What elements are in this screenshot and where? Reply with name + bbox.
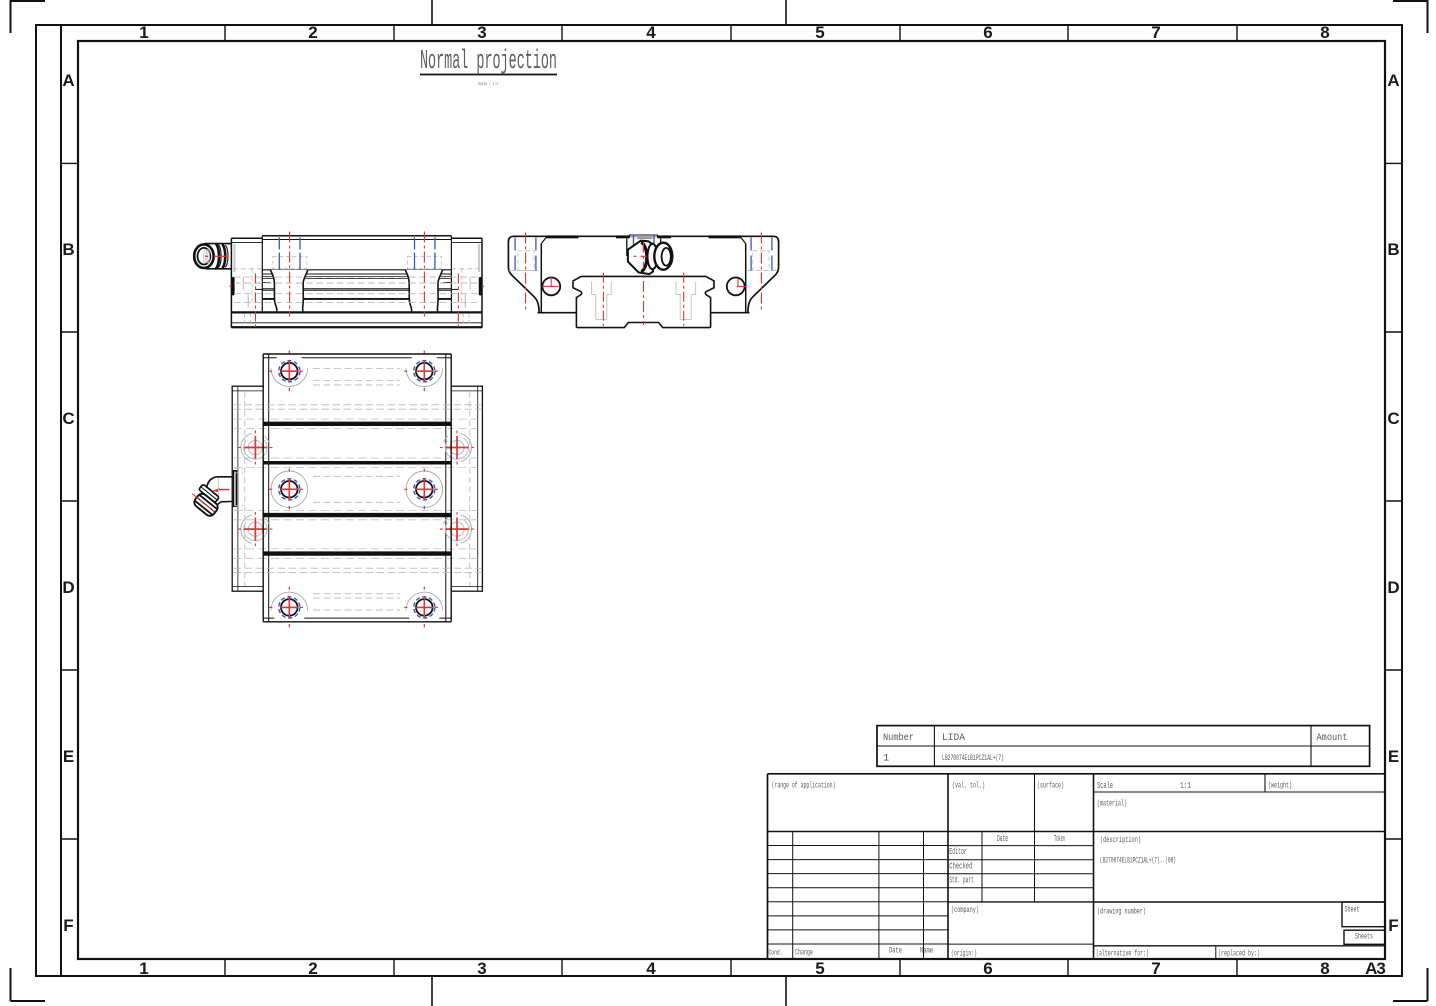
- svg-text:1: 1: [139, 23, 148, 42]
- svg-text:A3: A3: [1365, 959, 1385, 978]
- svg-text:Token: Token: [1054, 834, 1065, 844]
- svg-text:Amount: Amount: [1317, 732, 1348, 744]
- svg-text:B: B: [1387, 240, 1399, 259]
- svg-text:2: 2: [308, 23, 317, 42]
- svg-text:Date: Date: [997, 834, 1008, 844]
- svg-text:(description): (description): [1100, 835, 1141, 845]
- svg-text:(origin:): (origin:): [951, 950, 977, 958]
- svg-text:3: 3: [477, 23, 486, 42]
- svg-text:LB270074ELB1PCZ1AL+(7)..(00): LB270074ELB1PCZ1AL+(7)..(00): [1100, 858, 1176, 866]
- svg-text:5: 5: [815, 23, 824, 42]
- svg-text:A: A: [1387, 71, 1399, 90]
- svg-text:1: 1: [139, 959, 148, 978]
- svg-text:1:1: 1:1: [1180, 781, 1191, 791]
- svg-text:Change: Change: [795, 949, 813, 957]
- svg-text:(drawing number): (drawing number): [1097, 909, 1146, 917]
- svg-text:(alternative for:): (alternative for:): [1096, 950, 1149, 958]
- svg-text:(val. tol.): (val. tol.): [952, 783, 985, 791]
- svg-text:7: 7: [1151, 23, 1160, 42]
- svg-text:Normal projection: Normal projection: [420, 47, 557, 77]
- svg-text:(surface): (surface): [1037, 783, 1064, 791]
- svg-text:Number: Number: [883, 732, 914, 744]
- svg-text:6: 6: [983, 959, 992, 978]
- svg-text:B: B: [62, 240, 74, 259]
- svg-text:(range of application): (range of application): [772, 783, 836, 791]
- svg-text:(replaced by:): (replaced by:): [1218, 950, 1260, 958]
- svg-text:E: E: [1388, 747, 1399, 766]
- svg-text:LB270074ELB1PCZ1AL+(7): LB270074ELB1PCZ1AL+(7): [942, 753, 1004, 763]
- svg-text:C: C: [1387, 409, 1399, 428]
- svg-text:Scale: Scale: [1097, 781, 1113, 791]
- svg-text:4: 4: [646, 23, 656, 42]
- svg-text:3: 3: [477, 959, 486, 978]
- svg-text:D: D: [62, 578, 74, 597]
- svg-text:2: 2: [308, 959, 317, 978]
- svg-text:F: F: [1388, 916, 1398, 935]
- svg-text:A: A: [62, 71, 74, 90]
- svg-text:Std. part: Std. part: [949, 876, 974, 886]
- svg-text:5: 5: [815, 959, 824, 978]
- svg-text:(company): (company): [951, 907, 979, 915]
- svg-text:1: 1: [883, 752, 889, 764]
- svg-text:Name: Name: [920, 948, 933, 956]
- svg-text:D: D: [1387, 578, 1399, 597]
- svg-text:C: C: [62, 409, 74, 428]
- svg-text:(weight): (weight): [1268, 783, 1292, 791]
- svg-text:F: F: [63, 916, 73, 935]
- svg-text:8: 8: [1320, 959, 1329, 978]
- svg-text:(material): (material): [1097, 801, 1127, 809]
- svg-text:7: 7: [1151, 959, 1160, 978]
- svg-text:6: 6: [983, 23, 992, 42]
- svg-text:8: 8: [1320, 23, 1329, 42]
- svg-text:Scale = 1:1: Scale = 1:1: [478, 81, 498, 87]
- svg-text:E: E: [63, 747, 74, 766]
- svg-text:Cond.: Cond.: [769, 949, 783, 957]
- svg-text:Sheets: Sheets: [1355, 933, 1373, 941]
- svg-text:LIDA: LIDA: [942, 732, 966, 744]
- svg-text:Editor: Editor: [949, 847, 967, 857]
- svg-text:Sheet: Sheet: [1345, 907, 1360, 915]
- svg-text:4: 4: [646, 959, 656, 978]
- svg-text:Date: Date: [889, 948, 902, 956]
- svg-text:Checked: Checked: [949, 861, 972, 871]
